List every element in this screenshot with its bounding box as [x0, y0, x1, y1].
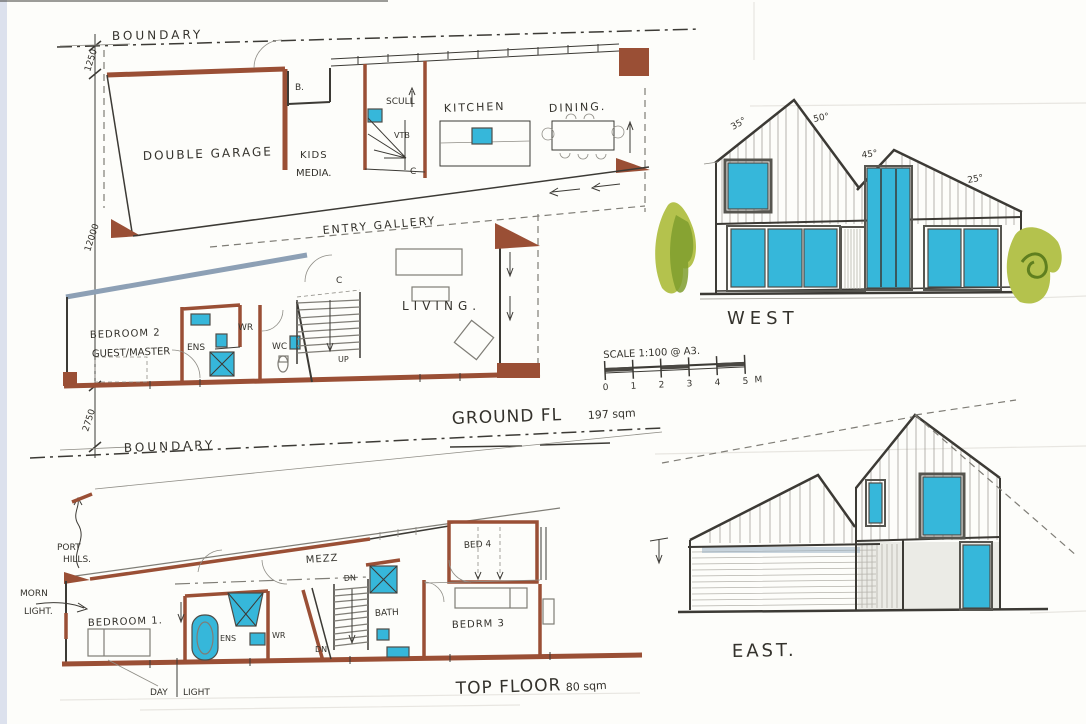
wall [107, 75, 132, 232]
window [543, 599, 554, 624]
window-glass [964, 229, 998, 287]
scale-bar: SCALE 1:100 @ A3. 0 1 2 3 4 5 M [601, 343, 762, 393]
door-arcs [198, 550, 287, 584]
window-glass [804, 229, 837, 287]
boundary-label: BOUNDARY [112, 27, 204, 43]
down-arrows [507, 252, 513, 320]
tick-label: 5 [742, 377, 748, 387]
roof-angle-right: 25° [967, 173, 984, 186]
wall-fill [64, 572, 90, 584]
dining-table [552, 121, 614, 150]
basin [377, 629, 389, 640]
window-glass [191, 314, 210, 325]
room-label-stair-c: C [336, 276, 342, 286]
up-arrow [627, 122, 633, 153]
room-label-b: B. [295, 83, 304, 93]
door-arc [424, 582, 444, 602]
wall-fill [497, 363, 540, 378]
board-hatching-low [710, 479, 852, 543]
room-label-garage: DOUBLE GARAGE [143, 144, 273, 163]
entry-gallery-ramp [133, 167, 649, 247]
treads [297, 300, 360, 353]
door-glass [963, 545, 990, 608]
flow-arrows [550, 183, 620, 196]
room-label-wr: WR [238, 323, 253, 333]
window-glass [728, 163, 768, 209]
sink [472, 128, 492, 144]
boundary-label: BOUNDARY [124, 438, 216, 455]
fixture [216, 334, 227, 347]
bar-segment [605, 367, 633, 372]
ground-shadow [700, 297, 1035, 299]
room-label-bedroom1: BEDROOM 1. [88, 615, 163, 629]
top-caption: TOP FLOOR 80 sqm [454, 675, 607, 699]
basin [290, 336, 300, 349]
top-floor-plan: BOUNDARY [20, 428, 662, 699]
anno-morn-light: LIGHT. [24, 607, 53, 617]
arrows [475, 572, 503, 579]
sofa [396, 249, 462, 275]
room-label-vtb: VTB [394, 131, 410, 140]
window-glass [731, 229, 765, 287]
wall [64, 374, 540, 386]
sketch-sheet: BOUNDARY 1250 12000 2750 [0, 0, 1086, 724]
west-windows [725, 160, 1001, 291]
anno-morn: MORN [20, 589, 48, 599]
door-arc [254, 40, 282, 68]
roof-angle-main: 50° [813, 112, 831, 125]
tick-label: 4 [714, 378, 720, 388]
screen-slats [845, 229, 860, 289]
room-label-dn-lower: DN [315, 645, 327, 654]
anno-hills: HILLS. [63, 555, 91, 565]
tick-label: 1 [630, 382, 636, 392]
steel-wall [66, 255, 307, 297]
bar-segment [661, 364, 689, 369]
elevation-label-east: EAST. [732, 640, 797, 662]
roof-low-gable [690, 475, 855, 540]
skylight-arrow [178, 602, 184, 622]
fixture [250, 633, 265, 645]
dimension-rail: 1250 12000 2750 [60, 34, 130, 458]
room-label-bedroom2: BEDROOM 2 [90, 328, 161, 341]
room-label-entry: ENTRY GALLERY [322, 214, 437, 237]
roof-angle-mid: 45° [861, 149, 878, 161]
top-stairs [303, 579, 368, 661]
window-glass [923, 477, 961, 535]
wall-fill [495, 223, 540, 249]
bed-outline [95, 357, 147, 382]
anno-port: PORT [57, 543, 81, 553]
architect-sketch: BOUNDARY 1250 12000 2750 [0, 0, 1086, 724]
garage-walls [104, 40, 285, 238]
window-glass [867, 168, 910, 288]
room-label-kids: KIDS [300, 150, 328, 161]
skylight-dash [478, 527, 500, 578]
north-window-wall [288, 44, 649, 106]
scan-edge-strip [0, 0, 7, 724]
bar-segment [717, 362, 745, 367]
shower [228, 593, 263, 626]
roof-tick [72, 494, 92, 502]
room-label-bedrm3: BEDRM 3 [452, 618, 505, 631]
room-label-up: UP [338, 355, 349, 364]
kitchen-dining-fixtures [440, 114, 624, 166]
tree-right [1007, 227, 1062, 303]
scullery-core [365, 61, 425, 178]
anno-day-light: LIGHT [183, 688, 210, 698]
ground-line [700, 292, 1035, 294]
room-label-scull: SCULL [386, 97, 415, 107]
room-label-guest-master: GUEST/MASTER [92, 346, 171, 360]
room-label-mezz: MEZZ [305, 553, 338, 566]
scale-label: SCALE 1:100 @ A3. [603, 346, 700, 361]
ground-caption: GROUND FL 197 sqm [450, 405, 636, 447]
dim-setback-bottom: 2750 [81, 408, 98, 433]
wall [107, 69, 285, 75]
tick-label: 2 [658, 380, 664, 390]
site-annotations [36, 494, 177, 697]
room-label-kitchen: KITCHEN [444, 100, 506, 115]
wall-fill [619, 48, 649, 76]
wall [449, 522, 537, 582]
garage-siding [692, 550, 876, 606]
room-label-ens: ENS [187, 343, 205, 353]
room-label-dn-upper: DN [344, 573, 357, 583]
east-elevation: EAST. [650, 400, 1077, 662]
room-label-wc: WC [272, 342, 287, 352]
room-label-living: LIVING. [402, 299, 481, 313]
dim-depth: 12000 [83, 222, 101, 253]
ground-stairs [297, 290, 360, 364]
room-label-wr: WR [272, 631, 286, 640]
treads [334, 587, 368, 646]
bed-outline [88, 629, 150, 656]
floor-caption: GROUND FL [451, 405, 562, 429]
bed-outline [455, 588, 527, 608]
fixture [387, 647, 409, 657]
dim-setback-top: 1250 [83, 48, 100, 73]
unit-label: M [754, 375, 762, 385]
projection-dashes [662, 400, 1077, 556]
stair-arrow [349, 589, 355, 643]
window-glass [869, 483, 882, 523]
elevation-label-west: WEST [727, 308, 799, 329]
room-label-ens: ENS [220, 634, 236, 643]
roof-angle-left: 35° [730, 116, 749, 133]
window-band [331, 44, 619, 66]
tree-left-shade [670, 215, 693, 293]
room-label-bed4: BED 4 [464, 540, 492, 551]
armchair [454, 320, 493, 359]
window [541, 527, 546, 580]
east-deck-edge [616, 88, 650, 212]
floor-caption: TOP FLOOR [454, 675, 561, 699]
room-label-media: MEDIA. [296, 168, 331, 179]
west-elevation: 35° 50° 45° 25° WEST [655, 100, 1062, 329]
anno-day: DAY [150, 688, 168, 698]
window-glass [768, 229, 802, 287]
shadow-wash [702, 547, 860, 553]
floor-area: 197 sqm [587, 407, 636, 422]
room-label-c: C [410, 167, 416, 177]
room-label-dining: DINING. [549, 100, 607, 115]
ground-floor-plan: BOUNDARY 1250 12000 2750 [57, 27, 700, 458]
tick-label: 3 [686, 379, 692, 389]
dim-arrow [650, 538, 668, 563]
landing-dash [297, 290, 360, 297]
window-glass [928, 229, 961, 287]
mezz-area [175, 550, 367, 584]
room-label-bath: BATH [375, 608, 399, 619]
floor-area: 80 sqm [565, 679, 607, 694]
door-arc [449, 560, 471, 582]
top-ensuite [178, 591, 268, 662]
tick-label: 0 [603, 383, 609, 393]
